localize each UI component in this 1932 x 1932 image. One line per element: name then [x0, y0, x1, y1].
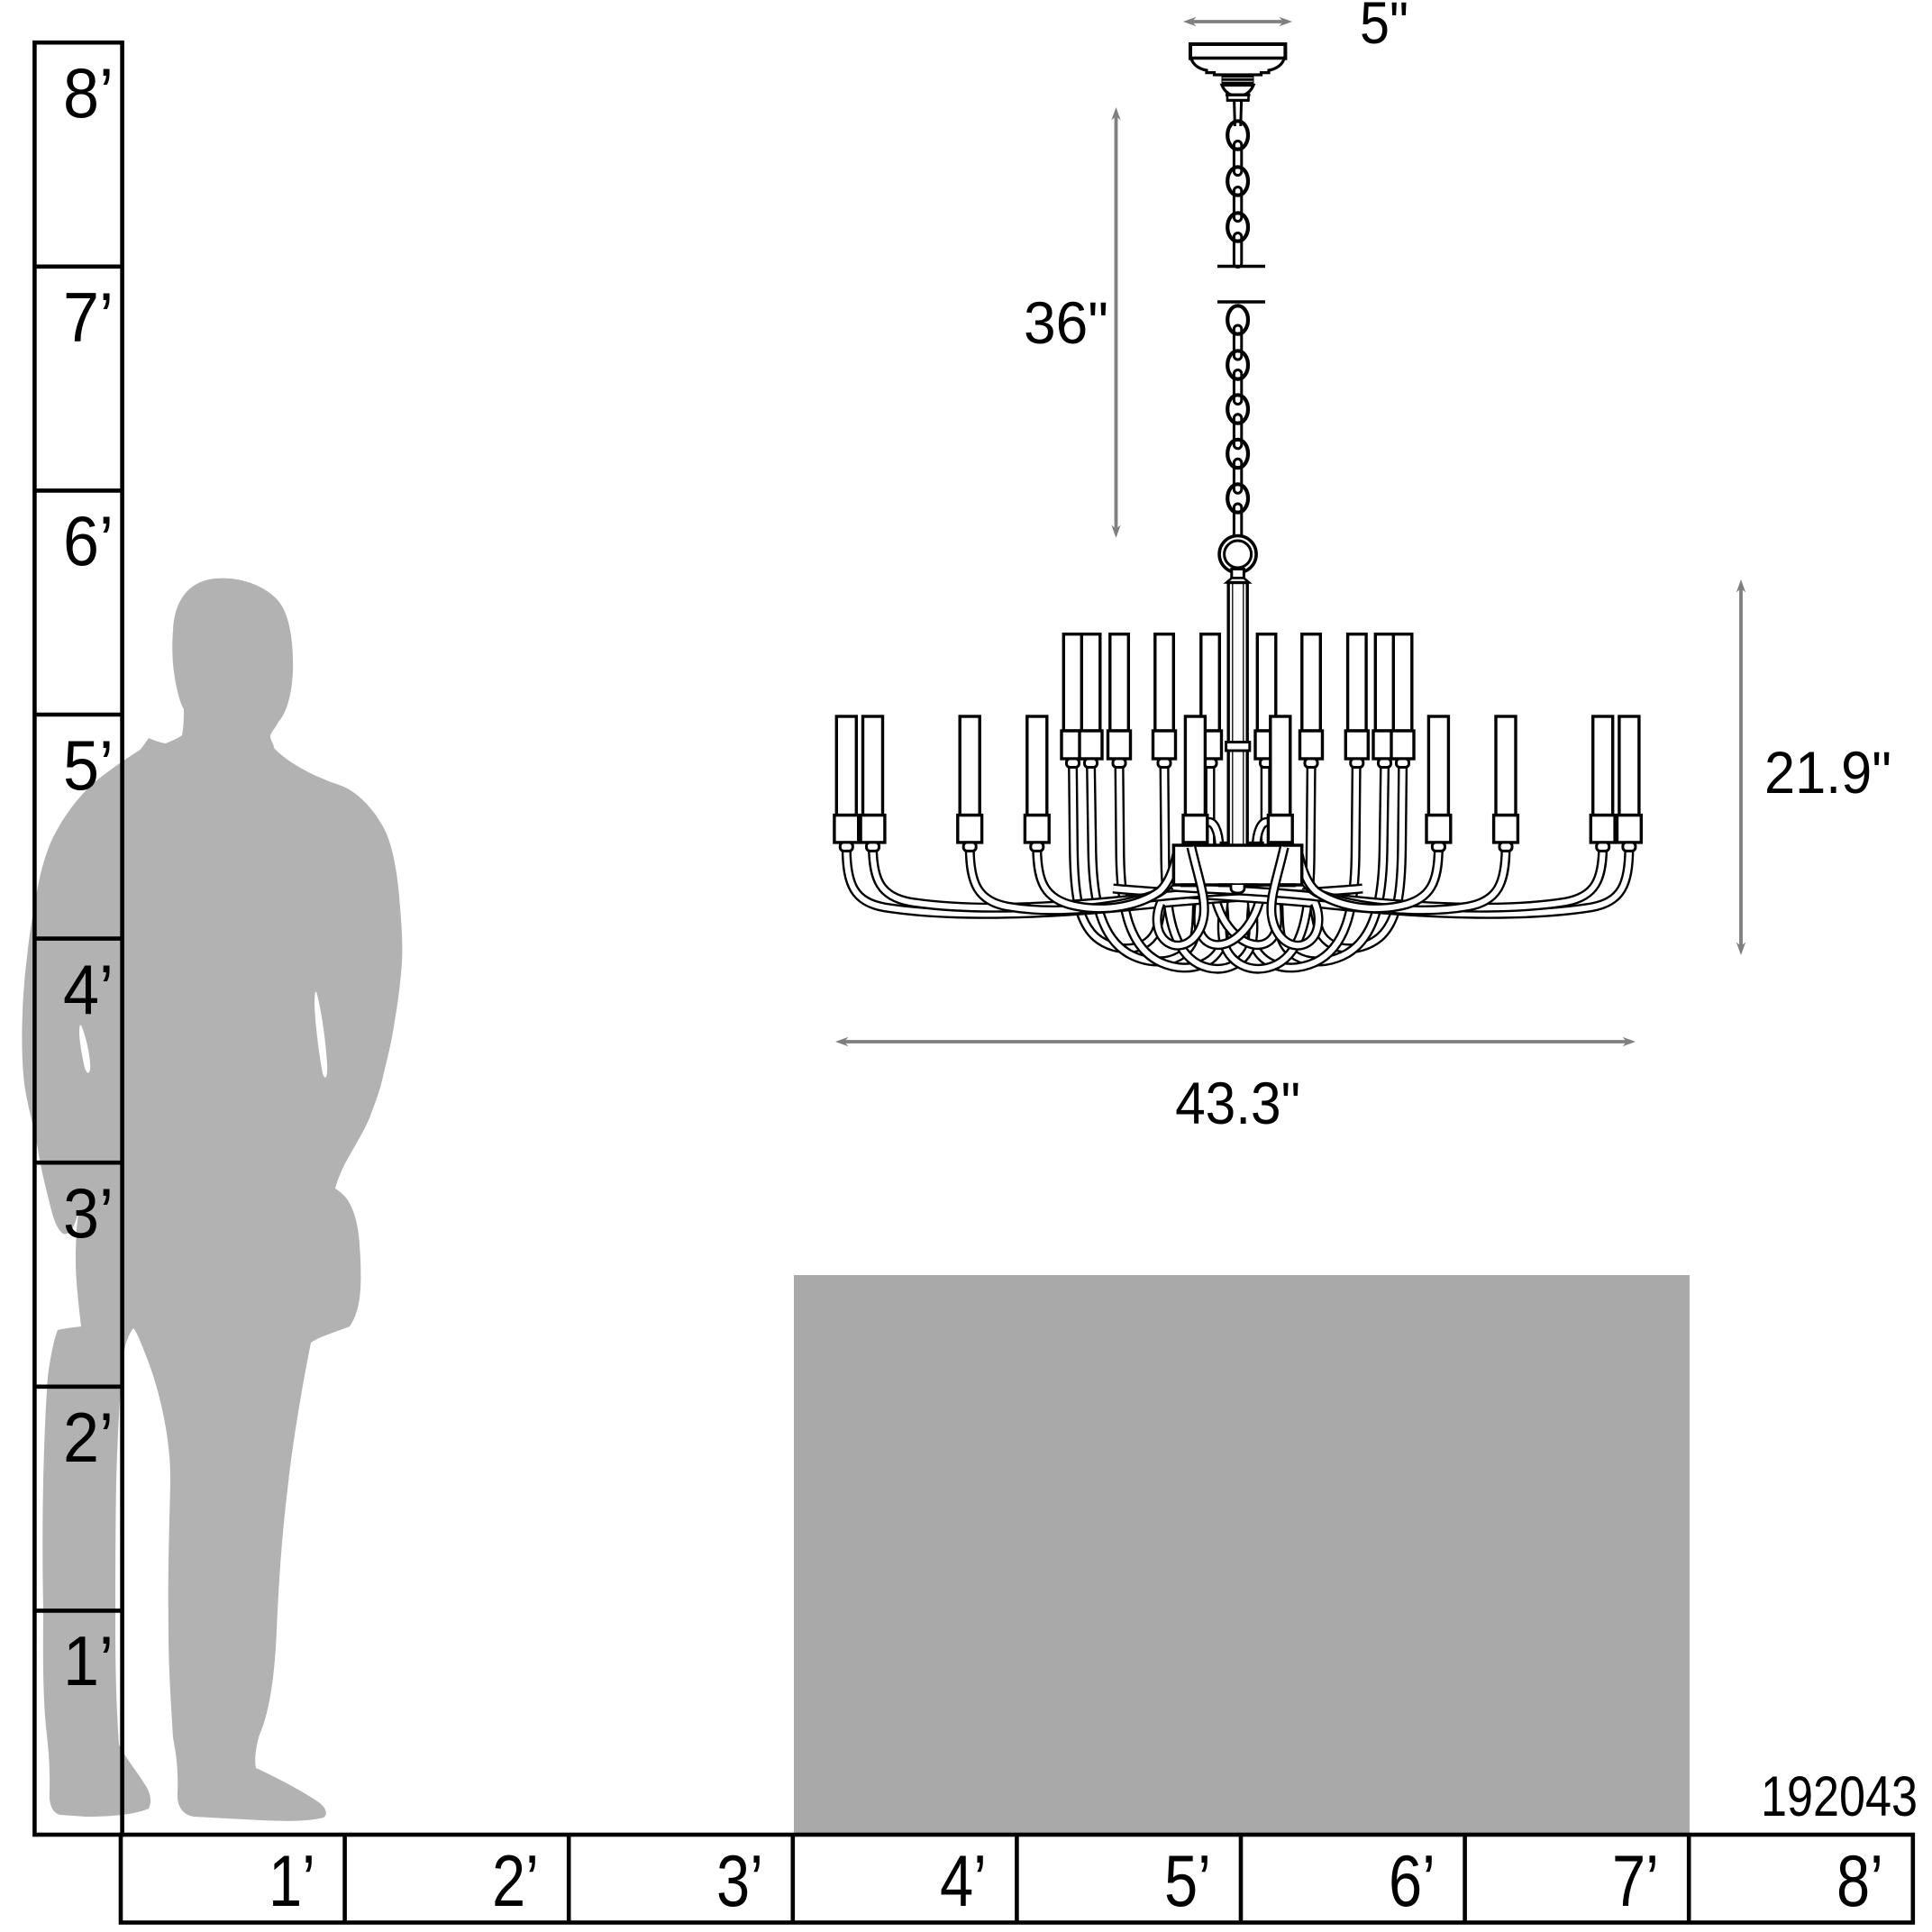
svg-text:4’: 4’: [63, 950, 114, 1029]
svg-text:1’: 1’: [269, 1841, 315, 1922]
svg-text:3’: 3’: [63, 1173, 114, 1253]
svg-text:6’: 6’: [1389, 1841, 1435, 1922]
svg-text:36": 36": [1024, 289, 1108, 356]
svg-text:8’: 8’: [1836, 1841, 1883, 1922]
svg-text:5’: 5’: [1164, 1841, 1211, 1922]
svg-text:2’: 2’: [63, 1398, 114, 1477]
svg-text:7’: 7’: [1612, 1841, 1659, 1922]
svg-text:1’: 1’: [63, 1621, 114, 1700]
svg-text:7’: 7’: [63, 278, 114, 357]
svg-text:3’: 3’: [716, 1841, 763, 1922]
svg-text:192043: 192043: [1761, 1765, 1918, 1828]
svg-text:43.3": 43.3": [1175, 1070, 1300, 1136]
svg-text:5": 5": [1360, 0, 1408, 56]
svg-text:21.9": 21.9": [1764, 739, 1891, 806]
svg-text:8’: 8’: [63, 53, 114, 132]
svg-text:4’: 4’: [940, 1841, 987, 1922]
svg-text:2’: 2’: [492, 1841, 539, 1922]
svg-text:5’: 5’: [63, 725, 114, 805]
svg-text:6’: 6’: [63, 501, 114, 580]
